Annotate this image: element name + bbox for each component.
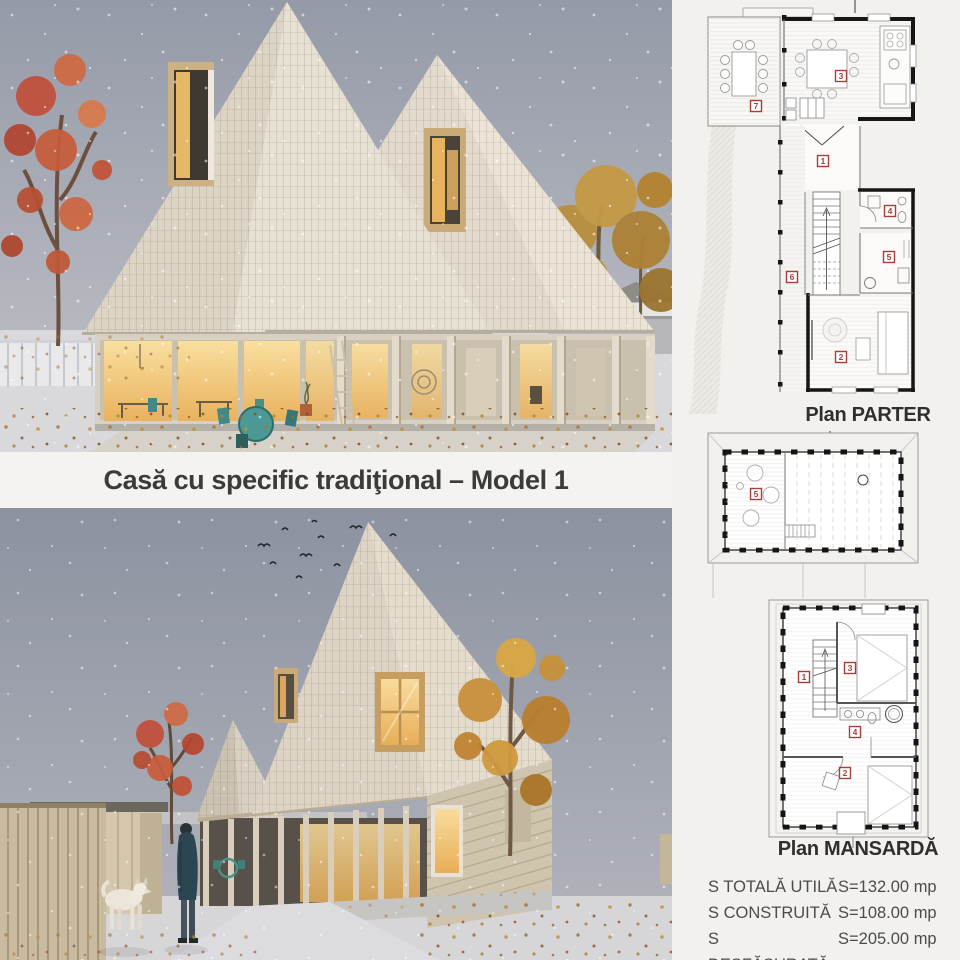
- svg-text:5: 5: [887, 252, 892, 262]
- plan-parter: 7 3 1 6 4 5 2: [672, 0, 960, 414]
- svg-text:6: 6: [790, 272, 795, 282]
- room-badge-2: 2: [836, 352, 847, 363]
- title-strip: Casă cu specific tradiţional – Model 1: [0, 452, 672, 508]
- snowfall: [0, 508, 676, 960]
- stat-label: S TOTALĂ UTILĂ: [708, 874, 838, 900]
- svg-text:4: 4: [853, 727, 858, 737]
- storage-room: [860, 232, 913, 295]
- page-title: Casă cu specific tradiţional – Model 1: [104, 465, 569, 496]
- room-badge-3: 3: [836, 71, 847, 82]
- plan-mansarda: 1 3 4 2: [672, 596, 960, 852]
- stat-value: S=132.00 mp: [838, 874, 944, 900]
- svg-text:4: 4: [888, 206, 893, 216]
- bottom-notch: [837, 812, 865, 834]
- stat-row-total-utila: S TOTALĂ UTILĂ S=132.00 mp: [708, 874, 944, 900]
- room-badge-3-mansarda: 3: [845, 663, 856, 674]
- corridor: [778, 126, 805, 392]
- svg-text:2: 2: [843, 768, 848, 778]
- room-badge-1-mansarda: 1: [799, 672, 810, 683]
- plan-loft: 5: [672, 428, 960, 600]
- staircase: [813, 192, 840, 295]
- svg-text:2: 2: [839, 352, 844, 362]
- room-badge-5-loft: 5: [751, 489, 762, 500]
- stat-row-construita: S CONSTRUITĂ S=108.00 mp: [708, 900, 944, 926]
- bedroom-top-bed: [857, 635, 907, 701]
- top-notch: [862, 604, 885, 614]
- render-bottom-image: [0, 508, 676, 960]
- room-badge-5: 5: [884, 252, 895, 263]
- room-badge-2-mansarda: 2: [840, 768, 851, 779]
- projection-lines: [713, 563, 865, 598]
- room-badge-4-mansarda: 4: [850, 727, 861, 738]
- living-room: [806, 293, 915, 393]
- presentation-board: Casă cu specific tradiţional – Model 1: [0, 0, 960, 960]
- plans-panel: 7 3 1 6 4 5 2 Plan PARTER: [672, 0, 960, 960]
- render-top-illustration: [0, 0, 672, 452]
- mansarda-stair: [813, 640, 837, 717]
- plan-mansarda-label: Plan MANSARDĂ: [758, 838, 958, 861]
- room-badge-6: 6: [787, 272, 798, 283]
- svg-text:3: 3: [839, 71, 844, 81]
- render-bottom-illustration: [0, 508, 676, 960]
- svg-text:7: 7: [754, 101, 759, 111]
- svg-text:1: 1: [821, 156, 826, 166]
- svg-text:5: 5: [754, 489, 759, 499]
- stat-value: S=108.00 mp: [838, 900, 944, 926]
- room-badge-7: 7: [751, 101, 762, 112]
- stat-label: S DESFĂȘURATĂ: [708, 926, 838, 960]
- snowfall: [0, 0, 672, 452]
- loft-stair: [785, 525, 815, 537]
- svg-text:1: 1: [802, 672, 807, 682]
- room-badge-4: 4: [885, 206, 896, 217]
- svg-text:3: 3: [848, 663, 853, 673]
- stat-value: S=205.00 mp: [838, 926, 944, 960]
- room-badge-1: 1: [818, 156, 829, 167]
- chimney: [858, 475, 868, 485]
- stat-label: S CONSTRUITĂ: [708, 900, 838, 926]
- stat-row-desfasurata: S DESFĂȘURATĂ S=205.00 mp: [708, 926, 944, 960]
- area-stats: S TOTALĂ UTILĂ S=132.00 mp S CONSTRUITĂ …: [708, 874, 944, 960]
- render-top-image: [0, 0, 672, 452]
- plan-parter-label: Plan PARTER: [768, 404, 960, 427]
